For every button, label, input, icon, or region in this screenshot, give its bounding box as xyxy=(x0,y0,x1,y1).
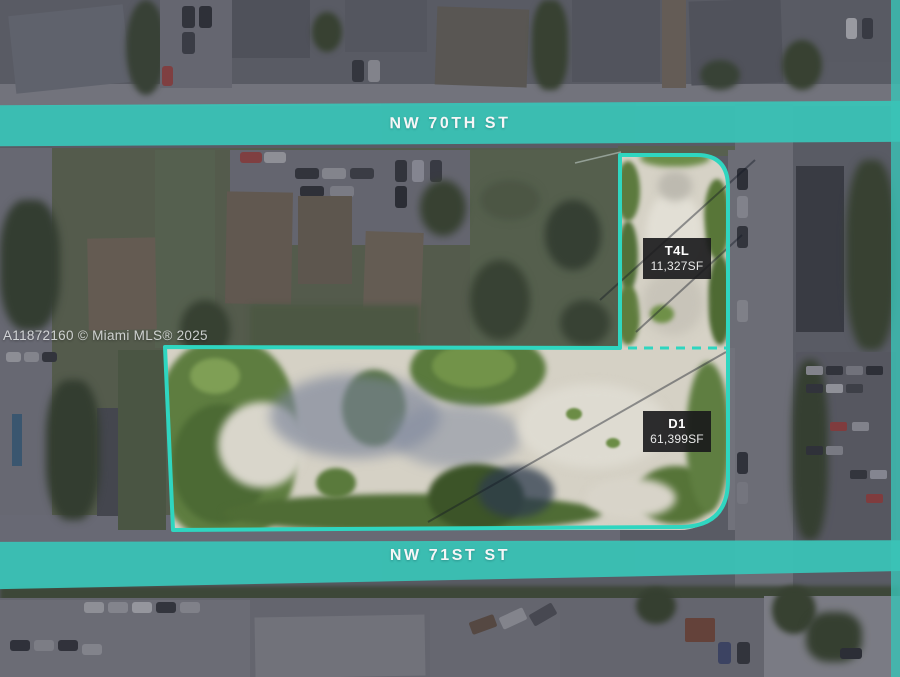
street-band-top: NW 70TH ST xyxy=(0,101,900,146)
car xyxy=(826,366,843,375)
parcel-id: D1 xyxy=(645,416,709,431)
car xyxy=(162,66,173,86)
lawn xyxy=(118,350,166,530)
dirt-alley xyxy=(662,0,686,88)
vegetation xyxy=(316,468,356,498)
car xyxy=(412,160,424,182)
tree-canopy xyxy=(846,160,896,350)
listing-photo: NW 70TH ST NW 71ST ST T4L 11,327SF D1 61… xyxy=(0,0,900,677)
sand-patch xyxy=(642,271,704,335)
car xyxy=(350,168,374,179)
car xyxy=(850,470,867,479)
building-roof xyxy=(796,166,844,332)
car xyxy=(852,422,869,431)
vegetation xyxy=(190,358,240,394)
car xyxy=(737,196,748,218)
car xyxy=(737,226,748,248)
street-name-top: NW 70TH ST xyxy=(389,114,510,133)
car xyxy=(826,384,843,393)
sand-patch xyxy=(658,171,692,201)
building-roof xyxy=(435,6,530,87)
street-name-bottom: NW 71ST ST xyxy=(390,547,510,565)
house-roof xyxy=(298,196,352,284)
parcel-area: 61,399SF xyxy=(645,432,709,446)
car xyxy=(322,168,346,179)
car xyxy=(295,168,319,179)
car xyxy=(132,602,152,613)
car xyxy=(180,602,200,613)
lawn xyxy=(250,305,420,350)
parcel-id: T4L xyxy=(645,243,709,258)
car xyxy=(806,446,823,455)
vegetation xyxy=(620,221,638,291)
vegetation xyxy=(620,161,640,221)
car xyxy=(866,494,883,503)
car xyxy=(199,6,212,28)
car xyxy=(108,602,128,613)
car xyxy=(737,452,748,474)
car xyxy=(34,640,54,651)
vegetation xyxy=(708,255,728,345)
car xyxy=(870,470,887,479)
car xyxy=(82,644,102,655)
parcel-label-t4l: T4L 11,327SF xyxy=(643,238,711,279)
car xyxy=(240,152,262,163)
tree-canopy xyxy=(636,588,676,624)
sand-patch xyxy=(586,478,676,518)
car xyxy=(846,18,857,39)
tree-canopy xyxy=(420,180,466,236)
parcel-area: 11,327SF xyxy=(645,259,709,273)
building-roof xyxy=(232,0,310,58)
vegetation xyxy=(640,155,710,167)
car xyxy=(862,18,873,39)
car xyxy=(826,446,843,455)
car xyxy=(84,602,104,613)
tree-canopy xyxy=(782,40,822,90)
vegetation xyxy=(650,305,674,323)
car xyxy=(806,384,823,393)
car xyxy=(830,422,847,431)
truck xyxy=(685,618,715,642)
tree-canopy xyxy=(545,200,601,270)
tree-canopy xyxy=(532,0,568,90)
tree-canopy xyxy=(0,200,60,330)
car xyxy=(737,168,748,190)
vegetation xyxy=(566,408,582,420)
mls-watermark: A11872160 © Miami MLS® 2025 xyxy=(3,328,208,343)
car xyxy=(737,482,748,504)
car xyxy=(156,602,176,613)
tree-canopy xyxy=(470,260,530,340)
car xyxy=(264,152,286,163)
car xyxy=(806,366,823,375)
car xyxy=(718,642,731,664)
parcel-label-d1: D1 61,399SF xyxy=(643,411,711,452)
vegetation xyxy=(620,285,640,345)
car xyxy=(10,640,30,651)
building-roof xyxy=(345,0,427,52)
car xyxy=(368,60,380,82)
car xyxy=(42,352,57,362)
tree-shadow xyxy=(478,466,554,518)
car xyxy=(6,352,21,362)
building-roof xyxy=(8,4,131,94)
tree-shadow xyxy=(392,404,522,468)
car xyxy=(737,642,750,664)
tree-canopy xyxy=(46,380,100,520)
car xyxy=(846,366,863,375)
car xyxy=(352,60,364,82)
pool xyxy=(12,414,22,466)
car xyxy=(58,640,78,651)
house-roof xyxy=(225,191,293,304)
car xyxy=(840,648,862,659)
house-roof xyxy=(87,237,157,330)
car xyxy=(846,384,863,393)
car xyxy=(430,160,442,182)
tree-canopy xyxy=(700,60,740,90)
car xyxy=(395,186,407,208)
vegetation xyxy=(606,438,620,448)
tree-canopy xyxy=(312,12,342,52)
car xyxy=(866,366,883,375)
grass-field xyxy=(480,180,540,220)
building-roof xyxy=(572,0,660,82)
car xyxy=(182,6,195,28)
car xyxy=(182,32,195,54)
car xyxy=(24,352,39,362)
tree-canopy xyxy=(560,300,610,346)
car xyxy=(737,300,748,322)
warehouse-roof xyxy=(254,615,425,677)
car xyxy=(395,160,407,182)
